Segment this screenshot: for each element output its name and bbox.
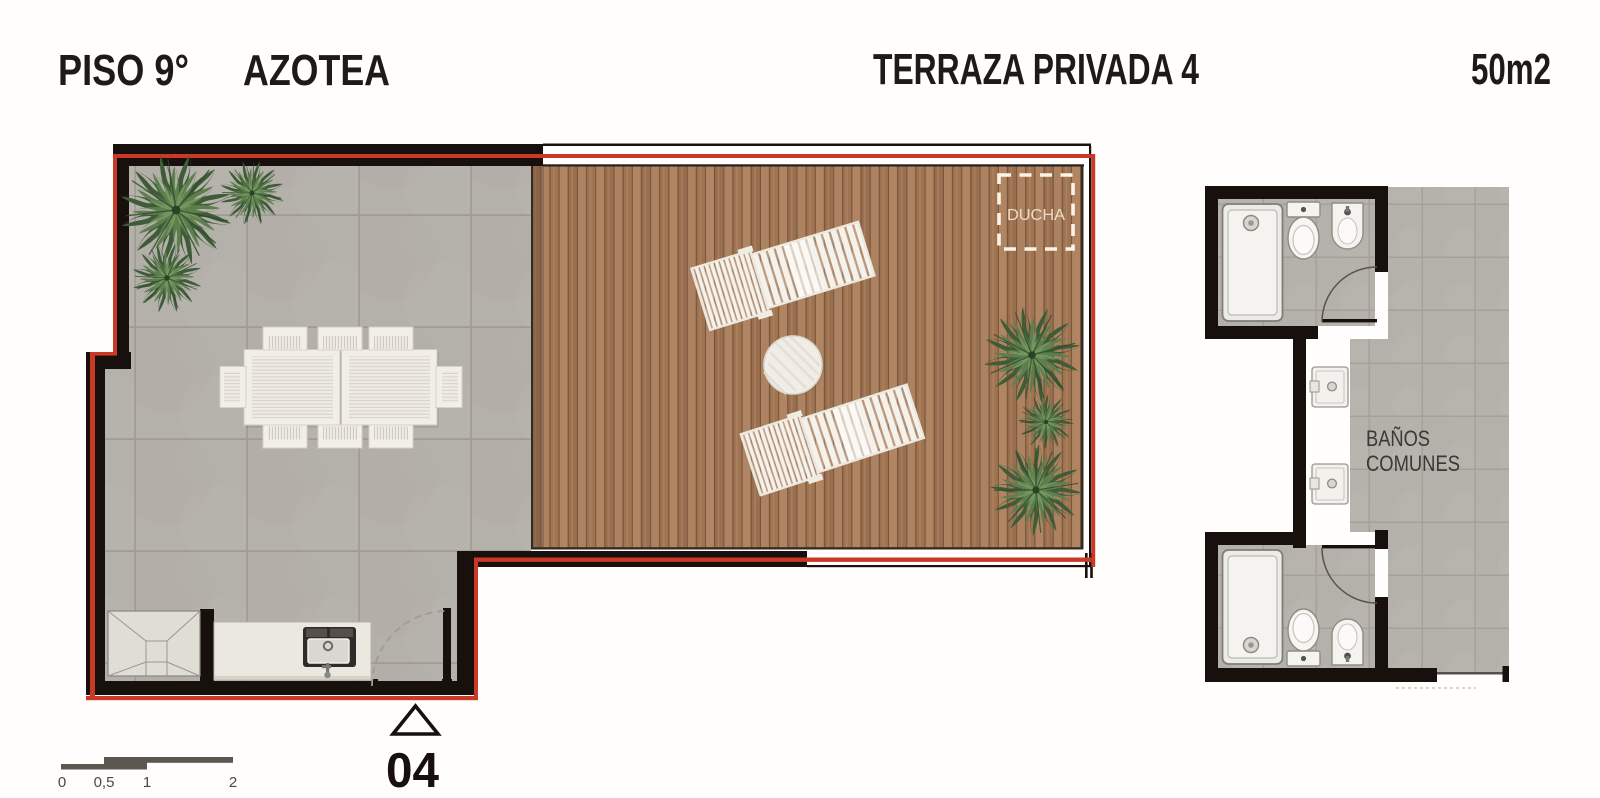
svg-text:1: 1: [143, 774, 151, 791]
svg-text:AZOTEA: AZOTEA: [243, 46, 390, 95]
svg-text:TERRAZA PRIVADA 4: TERRAZA PRIVADA 4: [873, 45, 1199, 94]
svg-text:BAÑOS: BAÑOS: [1366, 426, 1430, 451]
svg-text:2: 2: [229, 774, 237, 791]
svg-text:0,5: 0,5: [94, 774, 115, 791]
svg-text:04: 04: [386, 744, 439, 798]
svg-text:COMUNES: COMUNES: [1366, 451, 1460, 476]
svg-text:DUCHA: DUCHA: [1007, 207, 1065, 224]
svg-text:0: 0: [58, 774, 66, 791]
svg-text:PISO 9°: PISO 9°: [58, 46, 189, 95]
svg-text:50m2: 50m2: [1471, 45, 1551, 94]
